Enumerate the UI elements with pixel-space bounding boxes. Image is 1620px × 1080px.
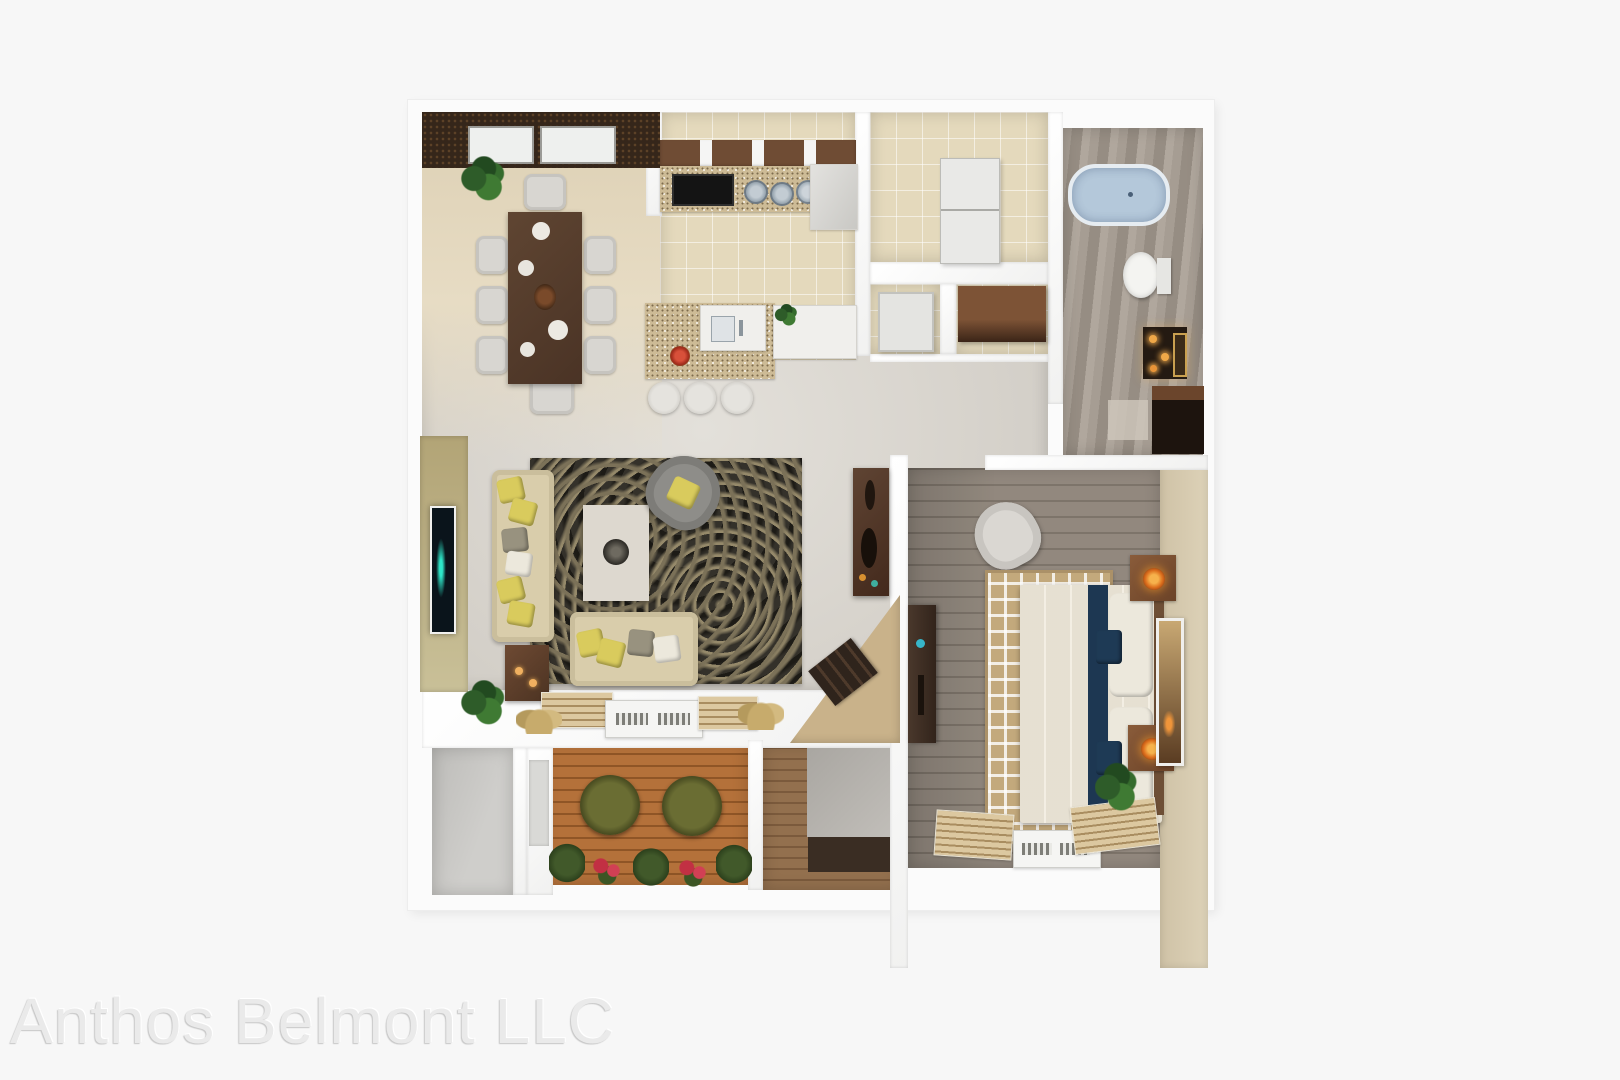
console-trinket xyxy=(871,580,878,587)
dining-chair xyxy=(476,236,508,274)
dining-window-right xyxy=(540,126,616,164)
decor-grass xyxy=(516,698,562,734)
toilet-tank xyxy=(1157,258,1171,294)
bed xyxy=(1020,585,1162,823)
patio-bush xyxy=(716,844,752,884)
wall-kitchen-right xyxy=(855,112,870,356)
console-decor xyxy=(861,528,877,568)
sofa-pillow xyxy=(504,550,533,577)
mirror-glow xyxy=(1163,711,1175,737)
orange-lamp xyxy=(1143,568,1165,590)
place-setting xyxy=(548,320,568,340)
island-stool xyxy=(684,382,716,414)
dining-chair xyxy=(584,286,616,324)
place-setting xyxy=(532,222,550,240)
coffee-table-decor xyxy=(603,539,629,565)
ac-vent xyxy=(616,713,648,725)
candle xyxy=(529,679,537,687)
wall-between-closets xyxy=(940,284,956,354)
armchair-pillow xyxy=(665,475,701,510)
wall-laundry-bottom xyxy=(870,262,1048,284)
dining-chair-top xyxy=(524,174,566,210)
patio-bush xyxy=(549,843,585,883)
candle xyxy=(1149,335,1157,343)
wall-bathroom-left xyxy=(1048,112,1063,404)
candle xyxy=(1161,353,1169,361)
bedroom-window-blinds xyxy=(933,809,1014,860)
entry-mat xyxy=(808,837,896,872)
washer-dryer-split xyxy=(941,209,999,211)
living-plant xyxy=(460,680,506,730)
toilet xyxy=(1123,252,1159,298)
dining-table xyxy=(508,212,582,384)
ac-vent xyxy=(1022,843,1052,855)
living-ac-unit xyxy=(605,700,703,738)
patio-door xyxy=(529,760,549,846)
closet-door-panel xyxy=(878,292,934,352)
entry-landing xyxy=(807,747,899,837)
kitchen-sink-basin xyxy=(744,180,768,204)
dining-chair xyxy=(584,336,616,374)
wall-closets-bottom xyxy=(870,354,1048,362)
bathroom-vanity xyxy=(1143,327,1187,379)
bedroom-plant xyxy=(1095,762,1137,818)
counter-plant xyxy=(774,304,798,328)
coffee-table xyxy=(583,505,649,601)
living-sofa xyxy=(492,470,554,642)
loveseat-pillow xyxy=(595,637,627,669)
cooktop xyxy=(672,174,734,206)
island-stool xyxy=(648,382,680,414)
island-sink-unit xyxy=(700,305,766,351)
dining-plant xyxy=(460,156,506,206)
vanity-frame xyxy=(1173,333,1187,377)
dining-chair xyxy=(584,236,616,274)
sofa-pillow xyxy=(506,600,536,628)
stacked-washer-dryer xyxy=(940,158,1000,264)
dresser-handle xyxy=(918,675,924,715)
floor-plan xyxy=(408,100,1214,910)
patio-bush xyxy=(633,848,669,886)
bedroom-dresser xyxy=(908,605,936,743)
place-setting xyxy=(518,260,534,276)
nightstand xyxy=(1130,555,1176,601)
wall-storage-right xyxy=(513,748,527,895)
bathtub-drain xyxy=(1128,192,1133,197)
dining-chair xyxy=(476,336,508,374)
fruit-bowl xyxy=(670,346,690,366)
patio-flowers xyxy=(676,855,712,887)
linen-closet-top xyxy=(1152,386,1204,400)
tv-screen-glow xyxy=(436,538,446,598)
console-trinket xyxy=(859,574,866,581)
living-loveseat xyxy=(570,612,698,686)
candle xyxy=(515,667,523,675)
loveseat-pillow xyxy=(627,629,656,658)
sofa-pillow xyxy=(501,527,529,554)
island-stool xyxy=(721,382,753,414)
console-decor xyxy=(865,480,875,510)
bed-navy-pillow xyxy=(1096,630,1122,664)
bathtub xyxy=(1068,164,1170,226)
place-setting xyxy=(520,342,535,357)
wall-bedroom-top xyxy=(985,455,1208,470)
loveseat-pillow xyxy=(652,634,681,663)
corner-cabinet xyxy=(810,164,858,230)
island-sink xyxy=(711,316,735,342)
candle xyxy=(1150,365,1157,372)
patio-flowers xyxy=(590,853,626,885)
wall-tv xyxy=(430,506,456,634)
island-faucet xyxy=(739,320,743,336)
dresser-decor xyxy=(916,639,925,648)
kitchen-sink-basin xyxy=(770,182,794,206)
sofa-pillow xyxy=(507,497,538,527)
patio-chair xyxy=(580,775,640,835)
ac-vent xyxy=(658,713,690,725)
linen-closet xyxy=(1152,386,1204,454)
bath-mat xyxy=(1108,400,1148,440)
leaning-mirror xyxy=(1156,618,1184,766)
watermark-text: Anthos Belmont LLC xyxy=(10,984,615,1058)
patio-chair xyxy=(662,776,722,836)
console-table xyxy=(853,468,889,596)
decor-grass xyxy=(738,690,784,730)
storage-room-floor xyxy=(432,748,513,895)
dining-chair xyxy=(476,286,508,324)
centerpiece xyxy=(534,284,556,310)
laundry-cabinet xyxy=(958,286,1046,342)
